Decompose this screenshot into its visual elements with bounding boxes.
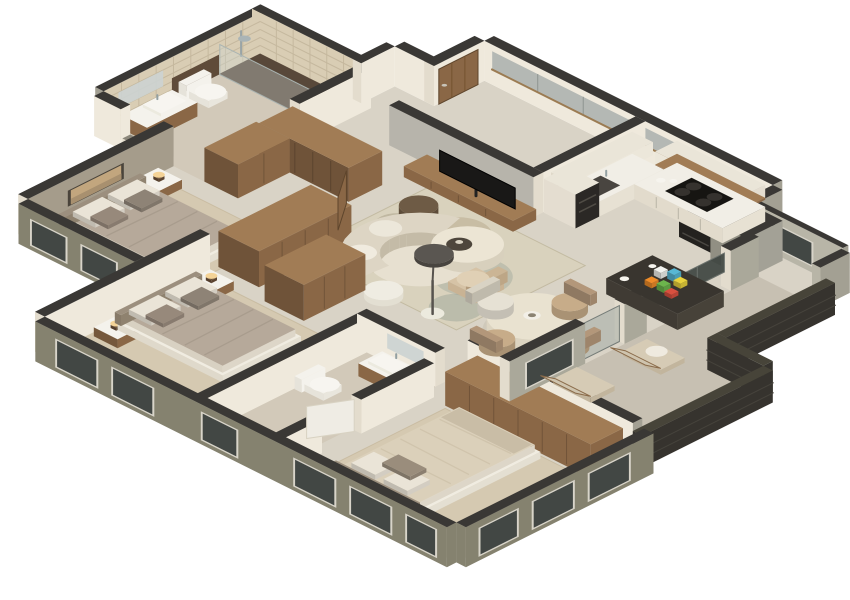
lounge-chair-1-towel xyxy=(646,346,668,357)
bath2-door-leaf xyxy=(307,400,355,439)
floor-plan-image xyxy=(0,0,850,600)
toilet2-seat xyxy=(310,377,340,392)
table-bowl xyxy=(523,311,540,320)
entry-door-handle xyxy=(442,84,448,87)
floor-lamp-shade xyxy=(414,244,454,268)
shower-head xyxy=(238,35,251,41)
toilet1-seat xyxy=(195,84,227,100)
pouf xyxy=(364,281,404,307)
isometric-floor-plan xyxy=(0,0,850,600)
